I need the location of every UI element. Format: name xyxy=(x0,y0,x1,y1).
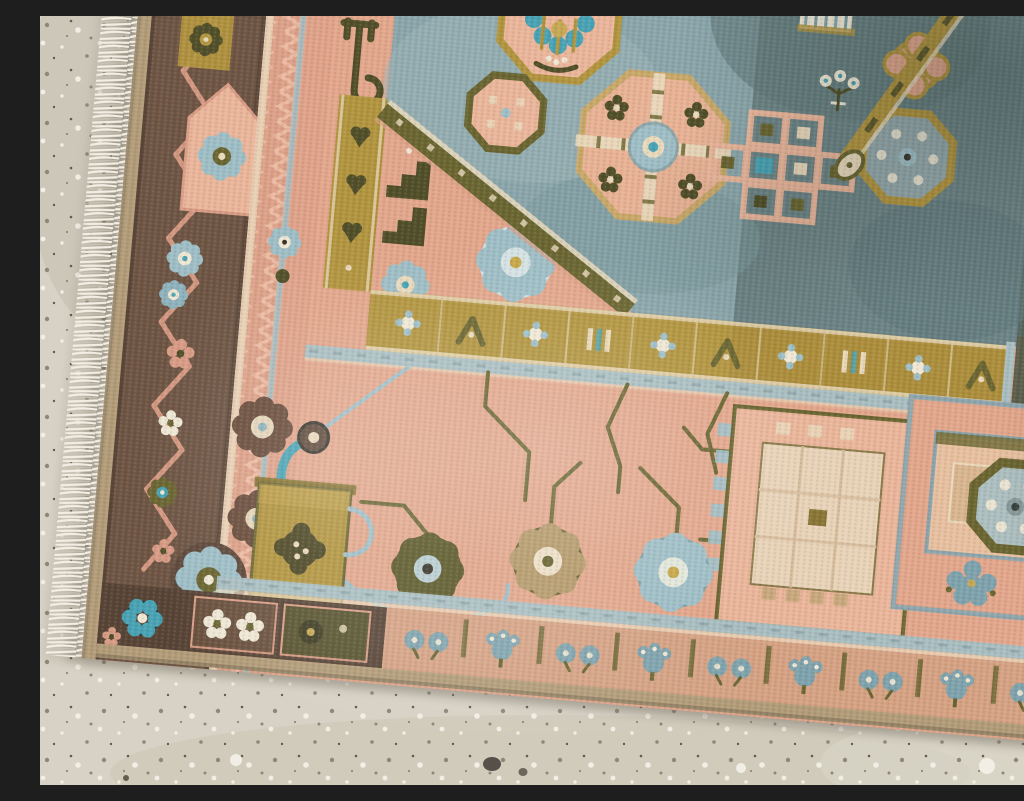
rug-photograph xyxy=(40,16,1024,785)
photo-frame: Corner of a faded vintage hand-knotted r… xyxy=(40,16,1024,785)
floor-stone-chip xyxy=(979,758,995,774)
